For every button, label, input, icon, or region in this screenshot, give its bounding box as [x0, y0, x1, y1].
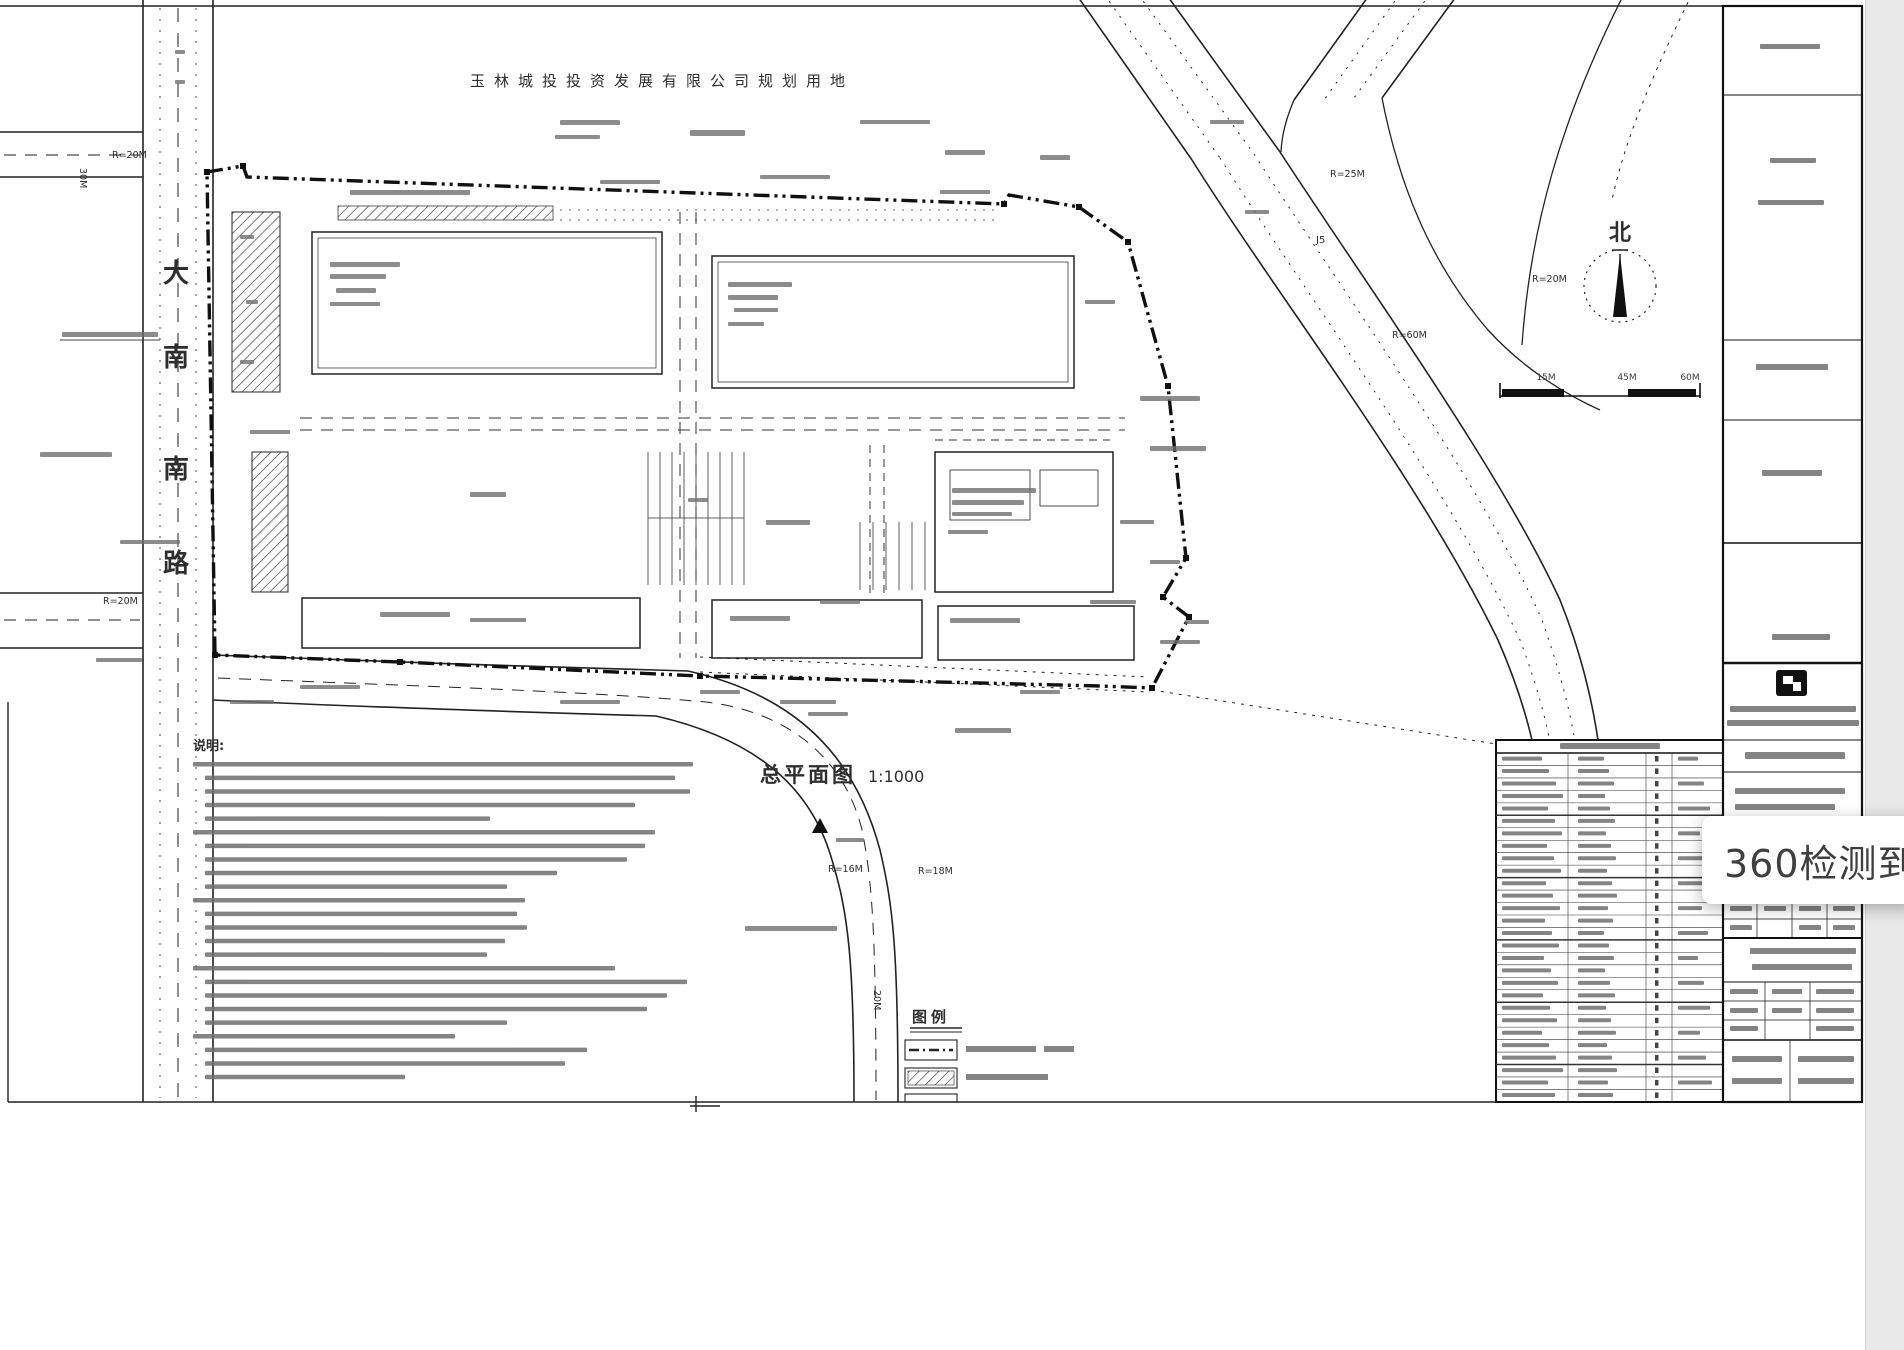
illegible-text — [1020, 690, 1060, 694]
radius-label: R=20M — [103, 596, 138, 607]
illegible-text — [1210, 120, 1244, 124]
illegible-text — [1502, 1081, 1548, 1085]
drawing-title: 总平面图 1:1000 — [760, 763, 924, 787]
illegible-text — [950, 618, 1020, 623]
illegible-text — [1090, 600, 1136, 604]
illegible-text — [1578, 1043, 1607, 1047]
illegible-text — [1798, 1078, 1854, 1084]
illegible-text — [205, 912, 517, 917]
road-name-vertical: 大南南路 — [163, 259, 190, 579]
illegible-text — [1833, 906, 1855, 911]
illegible-text — [1578, 856, 1616, 860]
illegible-text — [1758, 200, 1824, 205]
illegible-text — [193, 830, 655, 835]
illegible-text — [1040, 155, 1070, 160]
illegible-text — [205, 952, 487, 957]
annotation-text-mush — [40, 50, 1269, 931]
radius-label: R=25M — [1330, 169, 1365, 180]
illegible-text — [1578, 981, 1610, 985]
general-notes: 说明: — [193, 738, 693, 1079]
illegible-text — [1502, 956, 1544, 960]
illegible-text — [1150, 560, 1180, 564]
boundary-point — [397, 659, 403, 665]
illegible-text — [1678, 956, 1698, 960]
boundary-point — [1076, 204, 1082, 210]
top-parcel-label: 玉林城投投资发展有限公司规划用地 — [470, 72, 854, 90]
illegible-text — [175, 80, 185, 84]
illegible-text — [690, 130, 745, 136]
illegible-text — [1120, 520, 1154, 524]
illegible-text — [250, 430, 290, 434]
illegible-text — [555, 135, 600, 139]
illegible-text — [1502, 1093, 1555, 1097]
illegible-text — [780, 700, 836, 704]
illegible-text — [336, 288, 376, 293]
illegible-text — [1578, 1056, 1612, 1060]
road-name-char: 路 — [163, 548, 190, 579]
notes-header: 说明: — [193, 738, 224, 754]
site-plan-drawing: 北 15M 45M 60M 玉林城投投资发展有限公司规划用地 总平面图 1:10… — [0, 0, 1904, 1350]
illegible-text — [1578, 1031, 1616, 1035]
illegible-text — [1502, 819, 1555, 823]
illegible-text — [205, 980, 687, 985]
radius-label: R=20M — [1532, 274, 1567, 285]
illegible-text — [1760, 44, 1820, 49]
illegible-text — [1502, 844, 1547, 848]
illegible-text — [470, 492, 506, 497]
illegible-text — [1816, 1026, 1854, 1031]
scale-tick-15m: 15M — [1536, 373, 1555, 383]
illegible-text — [1578, 894, 1617, 898]
illegible-text — [193, 966, 615, 971]
scale-bar: 15M 45M 60M — [1500, 373, 1700, 398]
illegible-text — [1502, 931, 1552, 935]
illegible-text — [1502, 1031, 1542, 1035]
illegible-text — [1678, 1006, 1710, 1010]
illegible-text — [734, 308, 778, 312]
illegible-text — [1502, 1056, 1556, 1060]
illegible-text — [470, 618, 526, 622]
illegible-text — [205, 939, 505, 944]
illegible-text — [300, 685, 360, 689]
illegible-text — [1772, 989, 1802, 994]
illegible-text — [1160, 640, 1200, 644]
illegible-text — [1730, 989, 1758, 994]
illegible-text — [1764, 906, 1786, 911]
illegible-text — [1502, 1068, 1563, 1072]
boundary-point — [1149, 685, 1155, 691]
illegible-text — [205, 871, 557, 876]
scale-tick-60m: 60M — [1680, 373, 1699, 383]
dimension-labels: 20M30M — [77, 168, 882, 1010]
illegible-text — [1678, 1031, 1700, 1035]
illegible-text — [1730, 925, 1752, 930]
svg-text:1:1000: 1:1000 — [868, 767, 924, 786]
illegible-text — [955, 728, 1011, 733]
illegible-text — [1678, 806, 1710, 810]
illegible-text — [1150, 446, 1206, 451]
illegible-text — [205, 1048, 587, 1053]
illegible-text — [1502, 769, 1549, 773]
illegible-text — [1772, 634, 1830, 640]
illegible-text — [1502, 1043, 1549, 1047]
road-name-char: 南 — [163, 455, 189, 485]
boundary-point — [1183, 555, 1189, 561]
illegible-text — [205, 1007, 647, 1012]
illegible-text — [1578, 881, 1612, 885]
illegible-text — [1185, 620, 1209, 624]
north-label: 北 — [1609, 221, 1631, 246]
illegible-text — [1502, 757, 1542, 761]
survey-point-labels: J5 — [1315, 235, 1325, 246]
illegible-text — [1678, 906, 1702, 910]
illegible-text — [1730, 1026, 1758, 1031]
illegible-text — [1578, 993, 1615, 997]
illegible-text — [1578, 931, 1604, 935]
illegible-text — [952, 512, 1012, 516]
illegible-text — [1578, 819, 1615, 823]
illegible-text — [1578, 844, 1611, 848]
illegible-text — [1245, 210, 1269, 214]
legend: 图例 — [905, 1008, 1074, 1102]
illegible-text — [600, 180, 660, 184]
illegible-text — [193, 762, 693, 767]
boundary-point — [697, 673, 703, 679]
illegible-text — [820, 600, 860, 604]
buildings — [232, 206, 1134, 833]
illegible-text — [205, 1061, 565, 1066]
boundary-point — [1001, 201, 1007, 207]
illegible-text — [1833, 925, 1855, 930]
illegible-text — [1578, 782, 1614, 786]
illegible-text — [205, 776, 675, 781]
illegible-text — [240, 360, 254, 364]
company-logo-icon — [1776, 670, 1807, 696]
illegible-text — [1560, 743, 1660, 749]
illegible-text — [1578, 794, 1605, 798]
illegible-text — [330, 302, 380, 306]
illegible-text — [1678, 1081, 1712, 1085]
illegible-text — [1730, 1008, 1758, 1013]
illegible-text — [1578, 1018, 1611, 1022]
illegible-text — [808, 712, 848, 716]
illegible-text — [1816, 1008, 1854, 1013]
illegible-text — [1678, 831, 1700, 835]
illegible-text — [193, 1034, 455, 1039]
illegible-text — [1502, 993, 1543, 997]
illegible-text — [1730, 906, 1752, 911]
illegible-text — [330, 262, 400, 267]
illegible-text — [205, 1020, 507, 1025]
illegible-text — [1578, 906, 1608, 910]
illegible-text — [1732, 1056, 1782, 1062]
illegible-text — [1502, 856, 1554, 860]
economic-indicator-table — [1496, 740, 1723, 1102]
illegible-text — [1502, 806, 1548, 810]
boundary-point — [1160, 594, 1166, 600]
illegible-text — [766, 520, 810, 525]
illegible-text — [1756, 364, 1828, 370]
illegible-text — [193, 898, 525, 903]
illegible-text — [860, 120, 930, 124]
illegible-text — [940, 190, 990, 194]
illegible-text — [1735, 788, 1845, 794]
illegible-text — [1678, 757, 1698, 761]
illegible-text — [945, 150, 985, 155]
illegible-text — [40, 452, 112, 457]
illegible-text — [560, 700, 620, 704]
road-name-char: 南 — [163, 343, 189, 373]
illegible-text — [1502, 906, 1560, 910]
point-label: J5 — [1315, 235, 1325, 246]
illegible-text — [205, 789, 690, 794]
radius-label: R=16M — [828, 864, 863, 875]
title-block — [1723, 6, 1862, 1102]
illegible-text — [1578, 757, 1604, 761]
illegible-text — [952, 488, 1036, 493]
illegible-text — [1816, 989, 1854, 994]
illegible-text — [728, 322, 764, 326]
illegible-text — [380, 612, 450, 617]
site-boundary — [204, 163, 1192, 691]
illegible-text — [1770, 158, 1816, 163]
illegible-text — [1502, 881, 1546, 885]
illegible-text — [1578, 968, 1605, 972]
illegible-text — [1730, 706, 1856, 712]
illegible-text — [1578, 869, 1607, 873]
illegible-text — [1578, 944, 1609, 948]
illegible-text — [205, 857, 627, 862]
360-detection-popup[interactable]: 360检测到 | W — [1702, 816, 1904, 904]
north-compass: 北 — [1584, 221, 1656, 322]
illegible-text — [1502, 869, 1561, 873]
boundary-point — [212, 652, 218, 658]
illegible-text — [728, 295, 778, 300]
illegible-text — [1750, 948, 1856, 954]
illegible-text — [205, 884, 507, 889]
illegible-text — [1578, 831, 1606, 835]
illegible-text — [745, 926, 837, 931]
illegible-text — [1732, 1078, 1782, 1084]
illegible-text — [205, 844, 645, 849]
illegible-text — [120, 540, 180, 544]
illegible-text — [1578, 1093, 1613, 1097]
illegible-text — [948, 530, 988, 534]
illegible-text — [688, 498, 708, 502]
illegible-text — [1799, 925, 1821, 930]
illegible-text — [350, 190, 470, 195]
illegible-text — [1085, 300, 1115, 304]
radius-label: R=60M — [1392, 330, 1427, 341]
boundary-point — [240, 163, 246, 169]
road-name-char: 大 — [163, 259, 189, 289]
illegible-text — [1578, 806, 1610, 810]
illegible-text — [1578, 1081, 1608, 1085]
illegible-text — [1502, 919, 1545, 923]
illegible-text — [1578, 1006, 1606, 1010]
illegible-text — [230, 700, 274, 704]
illegible-text — [760, 175, 830, 179]
illegible-text — [952, 500, 1024, 505]
scale-tick-45m: 45M — [1617, 373, 1636, 383]
illegible-text — [1578, 769, 1609, 773]
illegible-text — [246, 300, 258, 304]
illegible-text — [1578, 919, 1613, 923]
boundary-point — [1125, 239, 1131, 245]
illegible-text — [1502, 1006, 1550, 1010]
popup-text: 360检测到 — [1724, 833, 1904, 888]
illegible-text — [1678, 1056, 1706, 1060]
illegible-text — [1502, 894, 1553, 898]
illegible-text — [1798, 1056, 1854, 1062]
dimension-label: 20M — [871, 990, 882, 1010]
illegible-text — [240, 235, 254, 239]
illegible-text — [1772, 1008, 1802, 1013]
illegible-text — [96, 658, 142, 662]
boundary-point — [204, 169, 210, 175]
illegible-text — [1578, 956, 1614, 960]
radius-label: R=18M — [918, 866, 953, 877]
illegible-text — [205, 925, 527, 930]
illegible-text — [1140, 396, 1200, 401]
illegible-text — [1678, 981, 1704, 985]
illegible-text — [175, 50, 185, 54]
illegible-text — [1502, 794, 1563, 798]
legend-header: 图例 — [912, 1008, 950, 1026]
illegible-text — [1502, 1018, 1557, 1022]
svg-text:总平面图: 总平面图 — [760, 763, 856, 787]
illegible-text — [730, 616, 790, 621]
illegible-text — [1752, 964, 1852, 970]
illegible-text — [1502, 782, 1556, 786]
illegible-text — [1502, 981, 1558, 985]
boundary-point — [1165, 383, 1171, 389]
illegible-text — [62, 332, 158, 337]
illegible-text — [1678, 931, 1708, 935]
illegible-text — [205, 803, 635, 808]
illegible-text — [1799, 906, 1821, 911]
illegible-text — [1745, 752, 1845, 759]
radius-label: R=20M — [112, 150, 147, 161]
illegible-text — [700, 690, 740, 694]
illegible-text — [330, 274, 386, 279]
boundary-point — [1186, 614, 1192, 620]
illegible-text — [1762, 470, 1822, 476]
illegible-text — [1678, 782, 1704, 786]
illegible-text — [560, 120, 620, 125]
illegible-text — [1735, 804, 1835, 810]
illegible-text — [1727, 720, 1859, 726]
illegible-text — [1578, 1068, 1617, 1072]
dimension-label: 30M — [77, 168, 88, 188]
illegible-text — [205, 993, 667, 998]
illegible-text — [836, 838, 864, 842]
illegible-text — [1502, 944, 1559, 948]
illegible-text — [728, 282, 792, 287]
illegible-text — [205, 1075, 405, 1080]
illegible-text — [205, 816, 490, 821]
illegible-text — [1502, 968, 1551, 972]
illegible-text — [1502, 831, 1562, 835]
